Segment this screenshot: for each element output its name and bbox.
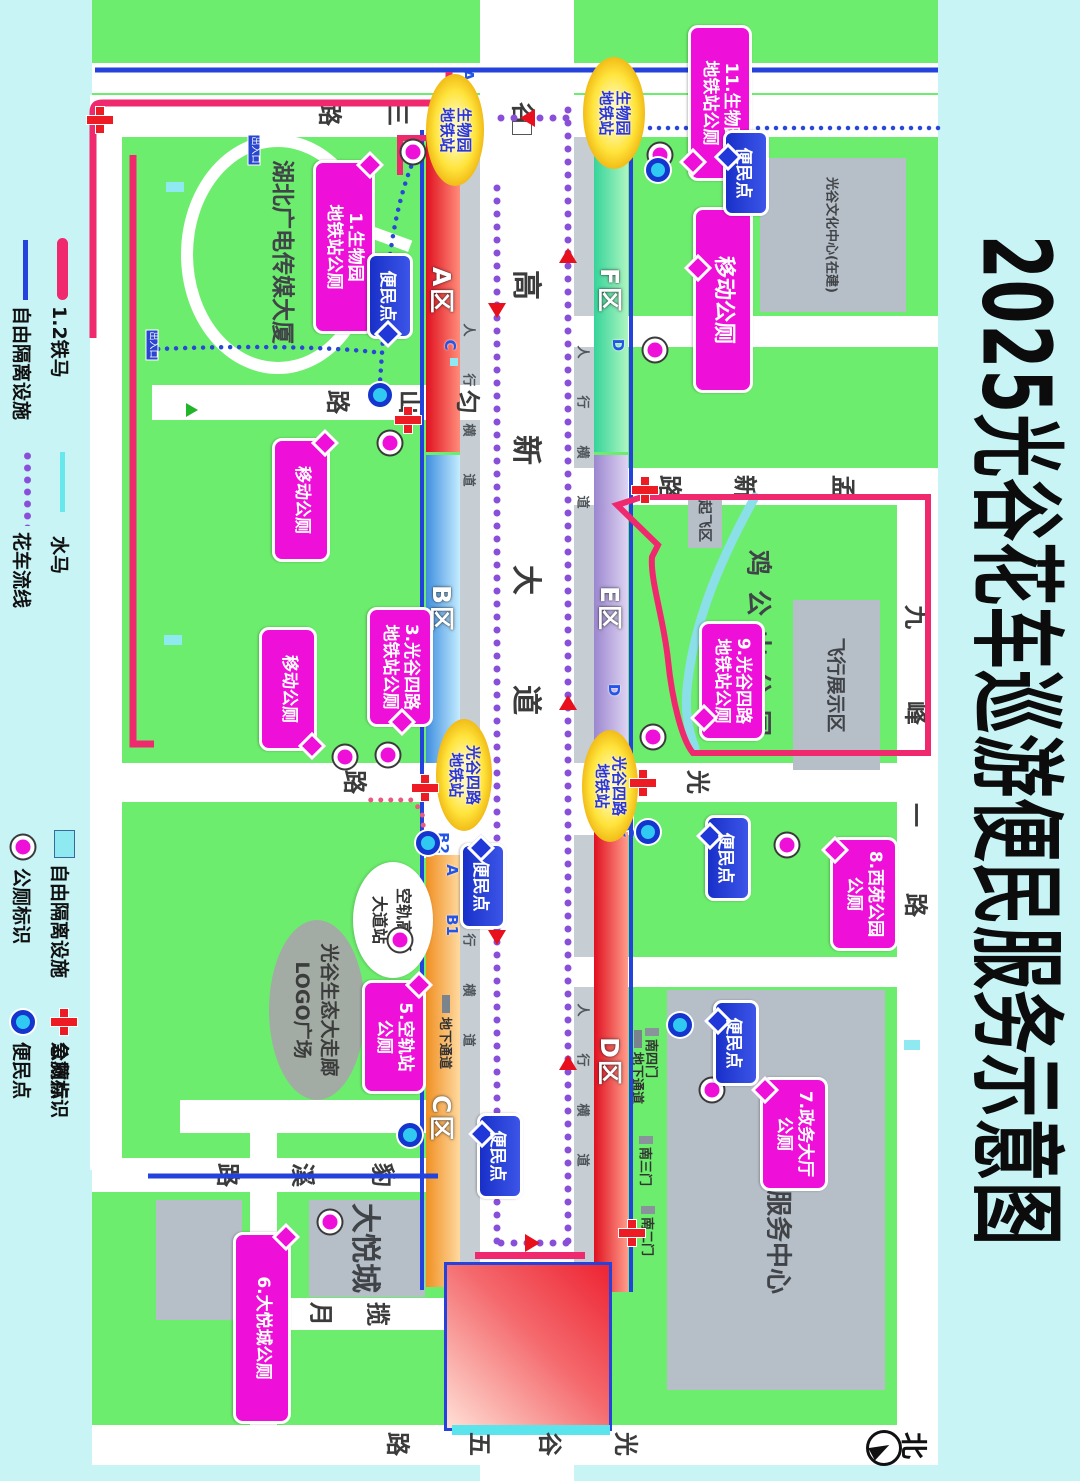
road-char: 新 <box>730 475 765 499</box>
metro-exit-A: A <box>443 864 461 876</box>
toilet-label-1: 1.生物园地铁站公厕 <box>313 160 375 334</box>
gate-label: 南三门 <box>637 1147 656 1186</box>
road-char: 路 <box>340 770 375 794</box>
road-char: 月 <box>306 1302 341 1326</box>
takeoff-area-label: 起飞区 <box>695 500 715 542</box>
crosswalk-char: 人 <box>461 323 480 336</box>
gate-nan4: 南四门 <box>643 1028 662 1078</box>
toilet-label-line1: 3.光谷四路 <box>400 624 421 710</box>
zone-F: F区 <box>594 130 628 452</box>
toilet-label-8: 8.西苑公园公厕 <box>830 837 898 951</box>
first-aid-cross <box>629 769 657 797</box>
toilet-marker-mobile-n <box>644 339 667 362</box>
water-barrier-tick <box>164 635 182 645</box>
park-entry-arrow <box>186 403 198 417</box>
station-name-line2: 地铁站 <box>597 90 614 135</box>
toilet-label-line2: 地铁站公厕 <box>699 61 720 146</box>
underpass-label: 地下通道 <box>437 995 456 1069</box>
water-barrier-tick <box>904 1040 920 1050</box>
toilet-label-line1: 6.大悦城公厕 <box>251 1276 272 1379</box>
legend-conv-circle <box>11 1010 35 1034</box>
convenience-marker <box>636 820 660 844</box>
crosswalk-char: 行 <box>575 1053 594 1066</box>
toilet-label-5: 5.空轨站公厕 <box>362 980 426 1094</box>
building-unnamed <box>156 1200 242 1320</box>
station-name-line2: 地铁站 <box>593 763 610 808</box>
toilet-marker-9 <box>642 726 665 749</box>
road-char: 三 <box>383 102 418 126</box>
convenience-label-text: 便民点 <box>734 148 759 199</box>
zone-D-label: D区 <box>593 1037 629 1087</box>
legend-first-aid-cross <box>50 1008 78 1036</box>
convenience-marker <box>668 1013 692 1037</box>
legend-label: 自由隔离设施 <box>47 864 74 978</box>
legend-label: 水马 <box>47 536 74 574</box>
crosswalk-char: 道 <box>575 1153 594 1166</box>
page-title: 2025光谷花车巡游便民服务示意图 <box>955 0 1080 1481</box>
first-aid-cross <box>411 774 439 802</box>
road-south-edge <box>90 95 122 1170</box>
road-char: 光 <box>611 1432 646 1456</box>
route-arrow-up <box>525 1234 540 1252</box>
crosswalk-char: 行 <box>575 395 594 408</box>
legend-purple-dots <box>23 450 32 526</box>
crosswalk-char: 道 <box>575 495 594 508</box>
station-name-line1: 光谷四路 <box>610 756 627 816</box>
toilet-marker-5 <box>389 929 412 952</box>
route-arrow-left <box>559 695 577 710</box>
end-zone <box>444 1262 612 1431</box>
road-char: 揽 <box>363 1302 398 1326</box>
first-aid-cross <box>394 406 422 434</box>
screenshot-frame: 2025光谷花车巡游便民服务示意图 F区 E区 D区 A区 B区 C区 光谷文化… <box>0 0 1080 1481</box>
station-name-line1: 光谷四路 <box>464 745 481 805</box>
convenience-label: 便民点 <box>705 815 751 901</box>
road-char: 九 <box>901 605 936 629</box>
gate-icon <box>646 1028 660 1036</box>
water-barrier-tick <box>450 358 458 366</box>
water-barrier-tick <box>166 182 184 192</box>
metro-exit-C: C <box>441 339 459 350</box>
road-jiufeng1 <box>897 490 938 1462</box>
road-char: 匀 <box>453 390 488 414</box>
station-name-line2: 地铁站 <box>438 107 455 152</box>
road-char: 路 <box>901 893 936 917</box>
crosswalk-char: 横 <box>575 1103 594 1116</box>
station-name-line1: 生物园 <box>614 90 631 135</box>
convenience-marker <box>646 158 670 182</box>
toilet-marker-1 <box>402 141 425 164</box>
toilet-marker-3 <box>377 744 400 767</box>
toilet-label-mobile-n: 移动公厕 <box>693 207 753 393</box>
toilet-label-line2: 地铁站公厕 <box>323 205 344 290</box>
road-north-2 <box>574 316 938 347</box>
road-char: 路 <box>383 1432 418 1456</box>
gate-icon <box>640 1136 654 1144</box>
toilet-label-line1: 移动公厕 <box>709 256 737 344</box>
first-aid-cross <box>618 1219 646 1247</box>
road-char: 豹 <box>368 1163 403 1187</box>
road-char: 路 <box>315 102 350 126</box>
legend-blue-line <box>23 240 28 300</box>
crosswalk-char: 人 <box>575 345 594 358</box>
road-char: 溪 <box>288 1163 323 1187</box>
toilet-marker-mobile-s2 <box>334 746 357 769</box>
toilet-marker-mobile-s1 <box>379 432 402 455</box>
toilet-label-line1: 8.西苑公园 <box>864 851 885 937</box>
building-wenhua-label: 光谷文化中心(在建) <box>824 177 843 293</box>
road-char: 五 <box>465 1432 500 1456</box>
konggui-station-ellipse: 空轨高新 大道站 <box>353 862 433 978</box>
convenience-label-text: 便民点 <box>378 271 403 322</box>
convenience-label-text: 便民点 <box>488 1131 513 1182</box>
route-arrow-down <box>520 109 535 127</box>
entrance-tag: 出入口 <box>248 134 261 165</box>
zone-F-label: F区 <box>593 268 629 314</box>
first-aid-cross <box>631 476 659 504</box>
crosswalk-char: 人 <box>575 1003 594 1016</box>
route-arrow-right <box>488 303 506 318</box>
toilet-marker-6 <box>319 1211 342 1234</box>
convenience-label-text: 便民点 <box>471 861 496 912</box>
convenience-label: 便民点 <box>723 130 769 216</box>
logo-plaza-line2: LOGO广场 <box>290 961 317 1058</box>
metro-exit-B1: B1 <box>443 914 461 936</box>
legend-metro-rect <box>54 830 75 858</box>
road-char: 新 <box>507 435 551 465</box>
crosswalk-char: 横 <box>461 983 480 996</box>
gate-label: 南四门 <box>643 1039 662 1078</box>
convenience-label: 便民点 <box>460 843 506 929</box>
convenience-label: 便民点 <box>477 1113 523 1199</box>
end-zone-pink-bar <box>475 1252 585 1259</box>
legend-row2-label: 自由隔离设施 <box>9 306 36 420</box>
metro-exit-D: D <box>605 684 623 696</box>
road-char: 高 <box>507 270 551 300</box>
crosswalk-char: 道 <box>461 473 480 486</box>
convenience-label-text: 便民点 <box>724 1018 749 1069</box>
legend-toilet-circle <box>12 836 35 859</box>
crosswalk-char: 行 <box>461 933 480 946</box>
zone-E-label: E区 <box>593 586 629 632</box>
road-char: 谷 <box>535 1432 570 1456</box>
station-shengwuyuan-north: 生物园地铁站 <box>583 57 645 169</box>
toilet-label-line2: 公厕 <box>373 1020 394 1054</box>
crosswalk-char: 道 <box>461 1033 480 1046</box>
zone-A-label: A区 <box>425 267 461 315</box>
road-char: 路 <box>655 475 690 499</box>
compass-icon <box>866 1430 902 1466</box>
toilet-label-line2: 地铁站公厕 <box>379 625 400 710</box>
legend-label: 急救点 <box>47 1042 74 1099</box>
road-char: 道 <box>507 685 551 715</box>
gate-nan3: 南三门 <box>637 1136 656 1186</box>
guangdian-building-label: 湖北广电传媒大厦 <box>268 160 302 344</box>
logo-plaza-line1: 光谷生态大走廊 <box>317 943 344 1076</box>
logo-plaza-ellipse: 光谷生态大走廊 LOGO广场 <box>269 920 365 1100</box>
toilet-label-line1: 5.空轨站 <box>394 1002 415 1071</box>
legend-label: 便民点 <box>9 1042 36 1099</box>
road-char: 大 <box>507 565 551 595</box>
convenience-marker <box>368 383 392 407</box>
legend-label: 公厕标识 <box>9 868 36 944</box>
toilet-label-line2: 公厕 <box>843 877 864 911</box>
building-dayuecheng-label: 大悦城 <box>346 1203 390 1293</box>
road-char: 孟 <box>828 475 863 499</box>
crosswalk-char: 行 <box>461 373 480 386</box>
gate-icon <box>642 1206 656 1214</box>
convenience-marker <box>398 1123 422 1147</box>
entrance-tag: 出入口 <box>146 329 159 360</box>
zone-C-label: C区 <box>425 1095 461 1142</box>
toilet-label-mobile-s2: 移动公厕 <box>259 627 317 751</box>
road-char: 路 <box>213 1163 248 1187</box>
road-char: 峰 <box>901 701 936 725</box>
flight-display-label: 飞行展示区 <box>824 637 851 732</box>
route-arrow-left <box>559 1055 577 1070</box>
road-char: 路 <box>323 390 358 414</box>
station-shengwuyuan-south: 生物园地铁站 <box>426 74 484 186</box>
toilet-label-line1: 1.生物园 <box>344 212 365 281</box>
legend-cyan-line <box>60 452 65 512</box>
toilet-label-mobile-s1: 移动公厕 <box>272 438 330 562</box>
underpass-text: 地下通道 <box>437 1017 456 1069</box>
toilet-label-6: 6.大悦城公厕 <box>233 1232 291 1424</box>
sidewalk-north <box>574 130 594 1292</box>
route-arrow-right <box>488 930 506 945</box>
toilet-label-line2: 地铁站公厕 <box>711 639 732 724</box>
crosswalk-char: 横 <box>461 423 480 436</box>
convenience-label-text: 便民点 <box>716 833 741 884</box>
first-aid-cross <box>86 106 114 134</box>
underpass-icon <box>443 995 451 1013</box>
metro-exit-D: D <box>609 339 627 351</box>
toilet-label-line1: 9.光谷四路 <box>732 638 753 724</box>
rotated-map-stage: 2025光谷花车巡游便民服务示意图 F区 E区 D区 A区 B区 C区 光谷文化… <box>0 0 1080 1481</box>
toilet-label-7: 7.政务大厅公厕 <box>760 1077 828 1191</box>
road-char: 光 <box>683 770 718 794</box>
toilet-label-line2: 公厕 <box>773 1117 794 1151</box>
legend-label: 花车流线 <box>9 532 36 608</box>
convenience-label: 便民点 <box>367 253 413 339</box>
convenience-label: 便民点 <box>713 1000 759 1086</box>
toilet-label-9: 9.光谷四路地铁站公厕 <box>699 621 765 741</box>
legend-pink-line <box>57 238 68 300</box>
toilet-label-line1: 移动公厕 <box>277 655 298 723</box>
toilet-label-line1: 7.政务大厅 <box>794 1091 815 1177</box>
toilet-label-3: 3.光谷四路地铁站公厕 <box>367 607 433 727</box>
route-arrow-left <box>559 248 577 263</box>
toilet-marker-8 <box>776 834 799 857</box>
crosswalk-char: 横 <box>575 445 594 458</box>
station-name-line2: 地铁站 <box>447 752 464 797</box>
station-guanggu4-south: 光谷四路地铁站 <box>436 719 492 831</box>
station-name-line1: 生物园 <box>455 107 472 152</box>
legend-label: 1.2铁马 <box>47 306 74 378</box>
convenience-marker <box>416 831 440 855</box>
road-char: 一 <box>901 803 936 827</box>
toilet-label-line1: 移动公厕 <box>290 466 311 534</box>
zone-E: E区 <box>594 455 628 763</box>
underpass-icon <box>635 1030 643 1048</box>
